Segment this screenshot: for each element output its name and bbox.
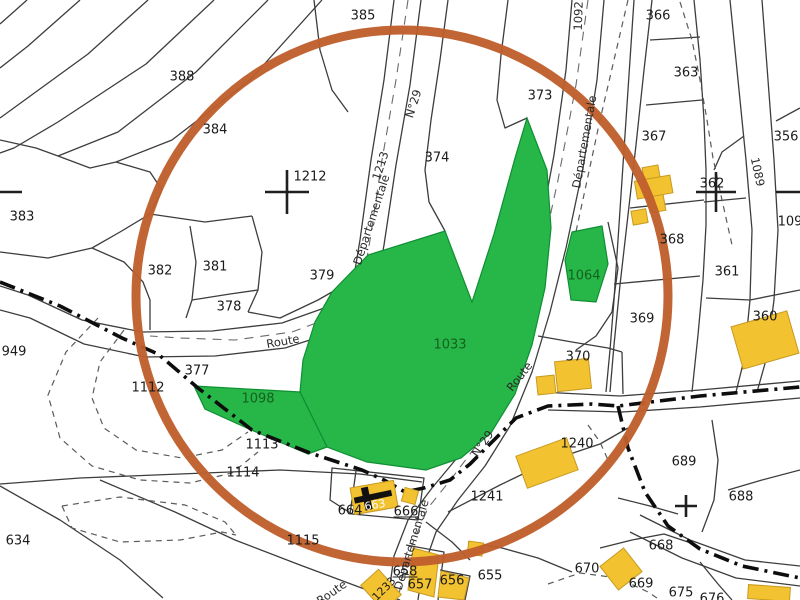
- parcel-label-381: 381: [203, 261, 228, 274]
- building-label-663: 663: [364, 498, 387, 512]
- parcel-label-949: 949: [2, 346, 27, 359]
- parcel-label-379: 379: [310, 270, 335, 283]
- parcel-label-1114: 1114: [226, 467, 259, 480]
- parcel-1064-shape[interactable]: [565, 226, 608, 302]
- parcel-label-366: 366: [646, 10, 671, 23]
- parcel-label-676: 676: [700, 593, 725, 600]
- parcel-label-368: 368: [660, 234, 685, 247]
- parcel-label-362: 362: [700, 178, 725, 191]
- parcel-label-383: 383: [10, 211, 35, 224]
- parcel-label-1115: 1115: [286, 535, 319, 548]
- road-label-1092: 1092: [573, 1, 586, 31]
- parcel-label-367: 367: [642, 131, 667, 144]
- parcel-label-675: 675: [669, 587, 694, 600]
- parcel-label-1113: 1113: [245, 439, 278, 452]
- parcel-label-655: 655: [478, 570, 503, 583]
- parcel-label-656: 656: [440, 575, 465, 588]
- parcel-label-361: 361: [715, 266, 740, 279]
- parcel-label-689: 689: [672, 456, 697, 469]
- parcel-label-1241: 1241: [470, 491, 503, 504]
- cadastral-map-canvas[interactable]: 3853883841212383382381379378374373366363…: [0, 0, 800, 600]
- parcel-label-1112: 1112: [131, 382, 164, 395]
- parcel-label-382: 382: [148, 265, 173, 278]
- parcel-label-669: 669: [629, 578, 654, 591]
- parcel-label-1064: 1064: [567, 270, 600, 283]
- parcel-label-384: 384: [203, 124, 228, 137]
- parcel-label-1212: 1212: [293, 171, 326, 184]
- parcel-label-385: 385: [351, 10, 376, 23]
- parcel-label-1098: 1098: [241, 393, 274, 406]
- parcel-label-634: 634: [6, 535, 31, 548]
- parcel-label-373: 373: [528, 90, 553, 103]
- parcel-label-670: 670: [575, 563, 600, 576]
- parcel-label-363: 363: [674, 67, 699, 80]
- parcel-label-688: 688: [729, 491, 754, 504]
- building-bottom-right: [748, 585, 791, 600]
- parcel-label-377: 377: [185, 365, 210, 378]
- parcel-label-1033: 1033: [433, 339, 466, 352]
- building-small: [631, 209, 648, 225]
- parcel-label-664: 664: [338, 505, 363, 518]
- parcel-label-657: 657: [408, 579, 433, 592]
- parcel-label-378: 378: [217, 301, 242, 314]
- parcel-label-388: 388: [170, 71, 195, 84]
- parcel-label-374: 374: [425, 152, 450, 165]
- parcel-label-369: 369: [630, 313, 655, 326]
- parcel-label-109: 109: [778, 216, 800, 229]
- parcel-label-356: 356: [774, 131, 799, 144]
- parcel-label-360: 360: [753, 311, 778, 324]
- building-parcel-370-small: [536, 375, 556, 395]
- parcel-label-668: 668: [649, 540, 674, 553]
- parcel-label-1240: 1240: [560, 438, 593, 451]
- parcel-label-370: 370: [566, 351, 591, 364]
